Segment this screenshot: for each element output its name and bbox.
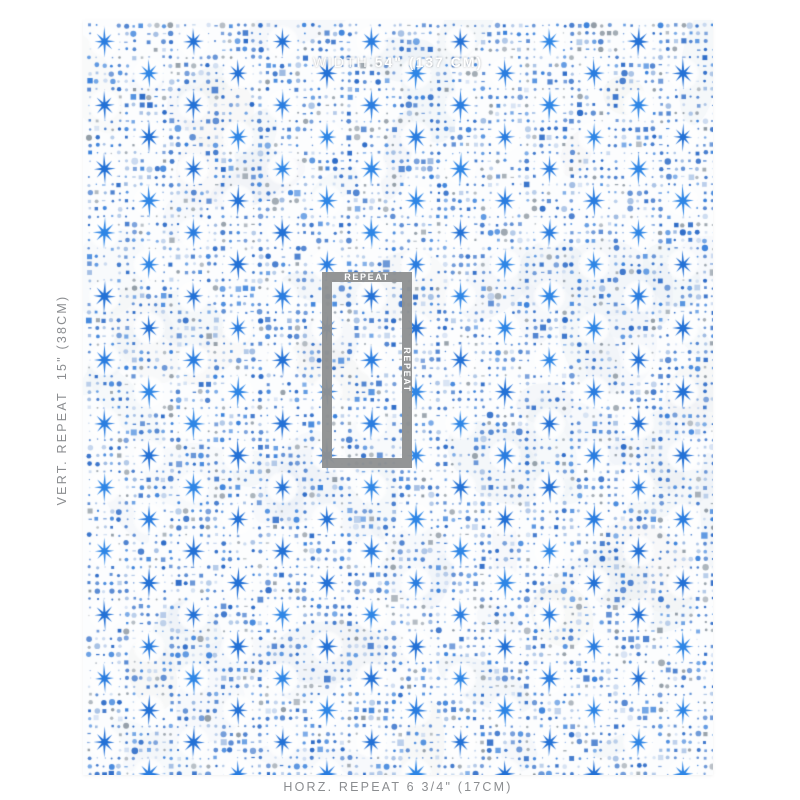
repeat-box-top-label: REPEAT bbox=[322, 272, 412, 282]
vertical-repeat-label: VERT. REPEAT 15" (38CM) bbox=[55, 295, 69, 506]
width-measure-bar: WIDTH54" (137 CM) bbox=[83, 57, 713, 67]
width-measure-label: WIDTH54" (137 CM) bbox=[313, 57, 483, 67]
repeat-outline-box: REPEAT REPEAT bbox=[322, 272, 412, 468]
width-label-value: 54" (137 CM) bbox=[375, 54, 483, 70]
width-label-prefix: WIDTH bbox=[313, 54, 369, 70]
repeat-box-side-label: REPEAT bbox=[402, 347, 412, 392]
horizontal-repeat-label: HORZ. REPEAT 6 3/4" (17CM) bbox=[83, 780, 713, 794]
